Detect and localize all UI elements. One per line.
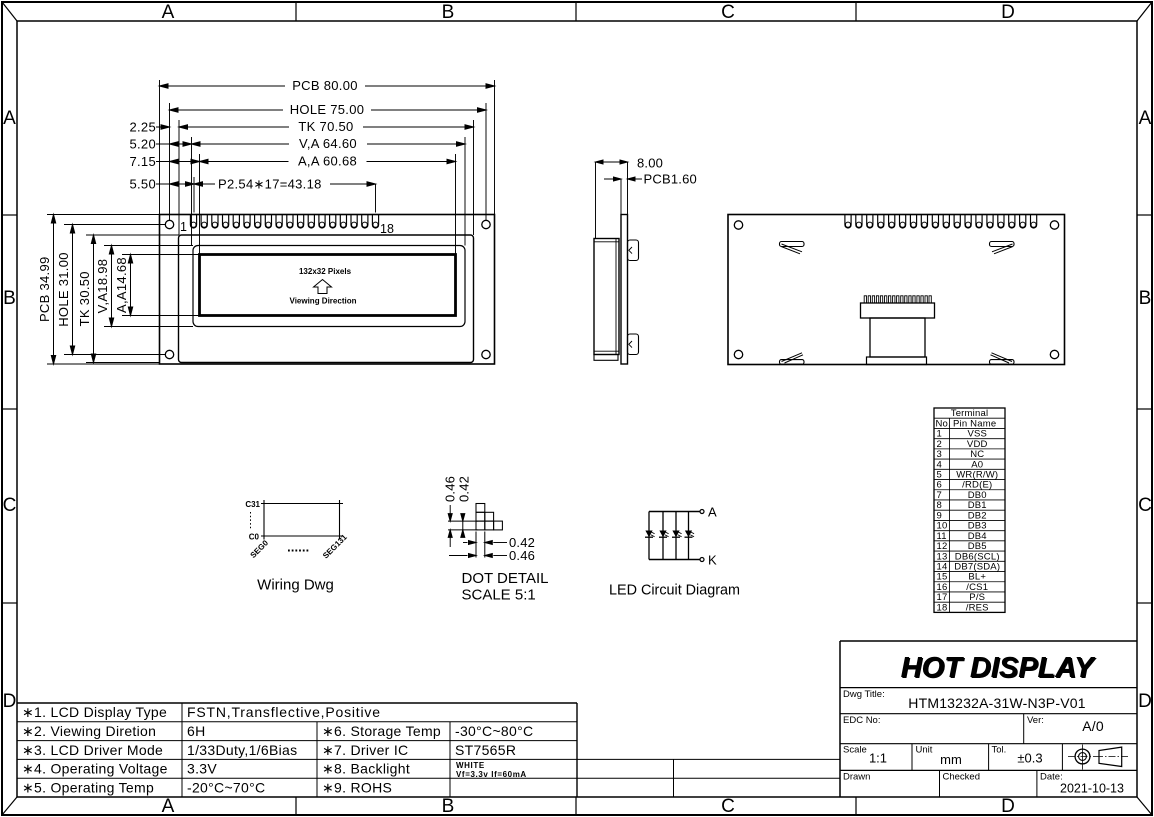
svg-text:EDC No:: EDC No: xyxy=(843,715,880,726)
svg-text:B: B xyxy=(442,2,455,23)
svg-text:132x32 Pixels: 132x32 Pixels xyxy=(299,267,352,276)
svg-text:C: C xyxy=(721,2,735,23)
svg-text:Vf=3.3v If=60mA: Vf=3.3v If=60mA xyxy=(456,770,527,779)
svg-text:HOLE 75.00: HOLE 75.00 xyxy=(290,102,365,117)
svg-text:A: A xyxy=(3,108,16,129)
svg-text:18: 18 xyxy=(380,222,394,236)
svg-text:C: C xyxy=(3,495,17,516)
svg-text:C: C xyxy=(721,796,735,817)
svg-text:∗3. LCD Driver Mode: ∗3. LCD Driver Mode xyxy=(22,742,163,758)
svg-text:TK 70.50: TK 70.50 xyxy=(298,119,353,134)
svg-text:Scale: Scale xyxy=(843,745,867,756)
svg-text:K: K xyxy=(708,553,717,568)
svg-text:∗2. Viewing Diretion: ∗2. Viewing Diretion xyxy=(22,723,156,739)
svg-text:Ver:: Ver: xyxy=(1027,715,1044,726)
svg-text:A: A xyxy=(162,796,175,817)
svg-text:-30°C~80°C: -30°C~80°C xyxy=(455,723,533,739)
svg-text:C31: C31 xyxy=(245,500,260,509)
svg-text:3.3V: 3.3V xyxy=(187,761,217,777)
svg-text:A: A xyxy=(708,505,717,520)
svg-text:8.00: 8.00 xyxy=(637,156,663,171)
svg-text:V,A 64.60: V,A 64.60 xyxy=(299,136,357,151)
svg-text:0.46: 0.46 xyxy=(443,476,458,502)
svg-text:1:1: 1:1 xyxy=(869,751,887,766)
svg-text:Wiring Dwg: Wiring Dwg xyxy=(257,577,334,594)
svg-text:∗8. Backlight: ∗8. Backlight xyxy=(322,761,410,777)
svg-text:1/33Duty,1/6Bias: 1/33Duty,1/6Bias xyxy=(187,742,297,758)
svg-text:PCB 34.99: PCB 34.99 xyxy=(37,256,52,322)
svg-text:0.42: 0.42 xyxy=(457,476,472,502)
svg-text:FSTN,Transflective,Positive: FSTN,Transflective,Positive xyxy=(187,704,381,720)
svg-text:Drawn: Drawn xyxy=(843,772,870,783)
svg-text:P2.54∗17=43.18: P2.54∗17=43.18 xyxy=(218,177,322,192)
svg-text:A/0: A/0 xyxy=(1082,718,1104,734)
svg-text:HOT DISPLAY: HOT DISPLAY xyxy=(901,652,1096,684)
svg-text:A: A xyxy=(1139,108,1152,129)
svg-text:D: D xyxy=(3,691,17,712)
svg-text:A,A14.68: A,A14.68 xyxy=(114,257,129,313)
svg-text:1: 1 xyxy=(180,220,187,234)
svg-text:DOT DETAIL: DOT DETAIL xyxy=(462,570,549,587)
svg-text:C: C xyxy=(1138,495,1152,516)
svg-text:Checked: Checked xyxy=(943,772,981,783)
svg-text:∗9. ROHS: ∗9. ROHS xyxy=(322,779,392,795)
svg-text:5.50: 5.50 xyxy=(129,177,156,192)
svg-text:B: B xyxy=(3,288,16,309)
svg-text:A,A 60.68: A,A 60.68 xyxy=(298,154,357,169)
svg-text:HTM13232A-31W-N3P-V01: HTM13232A-31W-N3P-V01 xyxy=(908,695,1085,711)
svg-text:D: D xyxy=(1001,796,1015,817)
svg-text:PCB 80.00: PCB 80.00 xyxy=(292,78,358,93)
svg-text:∗6. Storage Temp: ∗6. Storage Temp xyxy=(322,723,441,739)
svg-text:Tol.: Tol. xyxy=(992,745,1007,756)
svg-text:SCALE 5:1: SCALE 5:1 xyxy=(462,587,536,604)
svg-text:5.20: 5.20 xyxy=(129,137,156,152)
svg-text:LED Circuit Diagram: LED Circuit Diagram xyxy=(609,582,740,599)
svg-text:V,A18.98: V,A18.98 xyxy=(95,259,110,314)
svg-text:/RES: /RES xyxy=(966,602,989,613)
svg-text:B: B xyxy=(442,796,455,817)
svg-text:A: A xyxy=(162,2,175,23)
svg-text:∗4. Operating Voltage: ∗4. Operating Voltage xyxy=(22,761,168,777)
svg-text:Viewing Direction: Viewing Direction xyxy=(290,297,357,306)
svg-text:±0.3: ±0.3 xyxy=(1017,751,1042,766)
svg-text:Unit: Unit xyxy=(916,745,933,756)
svg-text:HOLE 31.00: HOLE 31.00 xyxy=(56,252,71,327)
svg-text:2021-10-13: 2021-10-13 xyxy=(1060,782,1124,796)
svg-text:PCB1.60: PCB1.60 xyxy=(644,172,697,187)
svg-text:ST7565R: ST7565R xyxy=(455,742,516,758)
svg-text:mm: mm xyxy=(940,752,962,767)
svg-text:TK 30.50: TK 30.50 xyxy=(77,271,92,326)
svg-text:D: D xyxy=(1001,2,1015,23)
svg-text:C0: C0 xyxy=(249,533,260,542)
svg-text:D: D xyxy=(1138,691,1152,712)
svg-text:∗7. Driver IC: ∗7. Driver IC xyxy=(322,742,408,758)
svg-text:WHITE: WHITE xyxy=(456,761,485,770)
svg-text:∗5. Operating Temp: ∗5. Operating Temp xyxy=(22,779,154,795)
svg-text:∗1. LCD Display Type: ∗1. LCD Display Type xyxy=(22,704,167,720)
svg-text:-20°C~70°C: -20°C~70°C xyxy=(187,779,265,795)
svg-text:0.46: 0.46 xyxy=(509,548,535,563)
svg-text:7.15: 7.15 xyxy=(129,154,156,169)
svg-text:Dwg Title:: Dwg Title: xyxy=(843,689,885,700)
svg-text:2.25: 2.25 xyxy=(129,120,156,135)
svg-text:B: B xyxy=(1139,288,1152,309)
svg-text:18: 18 xyxy=(937,602,948,613)
svg-text:6H: 6H xyxy=(187,723,206,739)
